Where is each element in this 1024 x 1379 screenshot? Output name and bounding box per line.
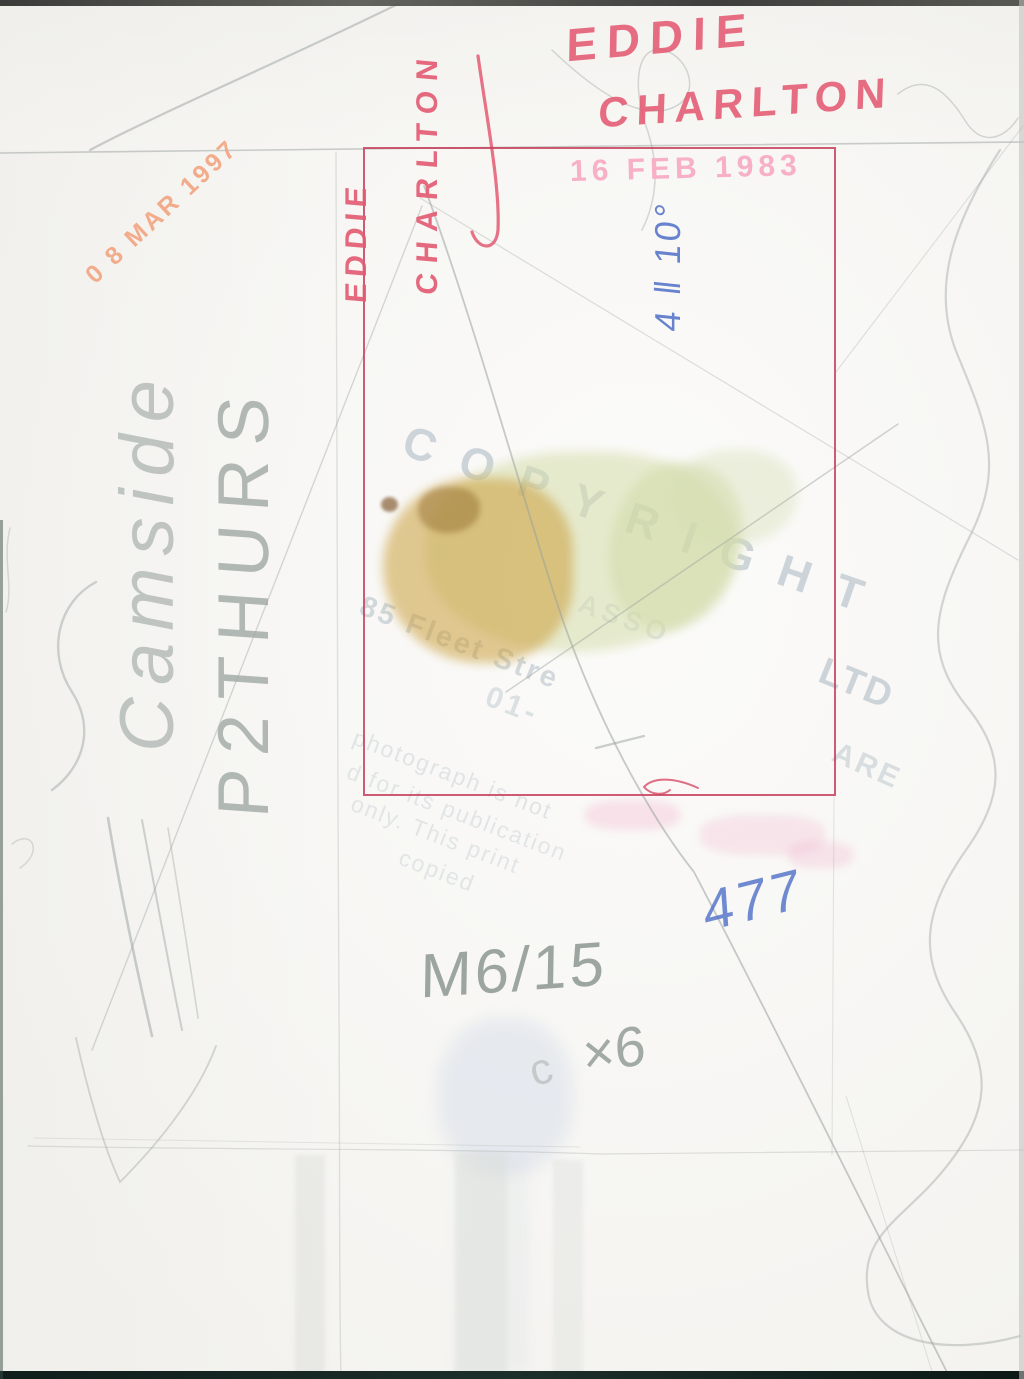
stamp-fragment-are: ARE — [828, 738, 906, 795]
date-stamp-1983: 16 FEB 1983 — [570, 151, 802, 187]
scan-edge-bottom — [0, 1371, 1024, 1379]
paper-tone-left — [0, 150, 340, 1379]
date-stamp-1997: 0 8 MAR 1997 — [81, 136, 242, 289]
erased-blue-smudge — [438, 1018, 573, 1173]
erased-blue-streak — [458, 1160, 528, 1370]
pencil-reference-code: M6/15 — [420, 933, 608, 1008]
caption-name-line2: CHARLTON — [598, 72, 895, 135]
blue-number-note: 477 — [702, 859, 805, 941]
pink-stamp-ghost — [585, 800, 680, 830]
blue-sideways-note: 4 ‖ 10° — [650, 199, 686, 333]
scuff-mark — [553, 1160, 583, 1379]
scan-edge-left — [0, 520, 3, 1379]
scuff-mark — [295, 1155, 325, 1379]
pencil-cursive-word: Camside — [110, 368, 186, 752]
caption-name-line1: EDDIE — [566, 6, 757, 69]
pencil-multiplier-note: ×6 — [581, 1016, 648, 1083]
photo-verso-scan: COPYRIGHT ASSO LTD ARE 85 Fleet Stre 01-… — [0, 0, 1024, 1379]
scan-edge-right — [1019, 0, 1024, 1379]
scan-edge-top — [0, 0, 1024, 6]
pencil-vertical-code: P2THURS — [208, 380, 280, 819]
vertical-name-line2: CHARLTON — [413, 48, 443, 296]
vertical-name-line1: EDDIE — [342, 180, 372, 304]
